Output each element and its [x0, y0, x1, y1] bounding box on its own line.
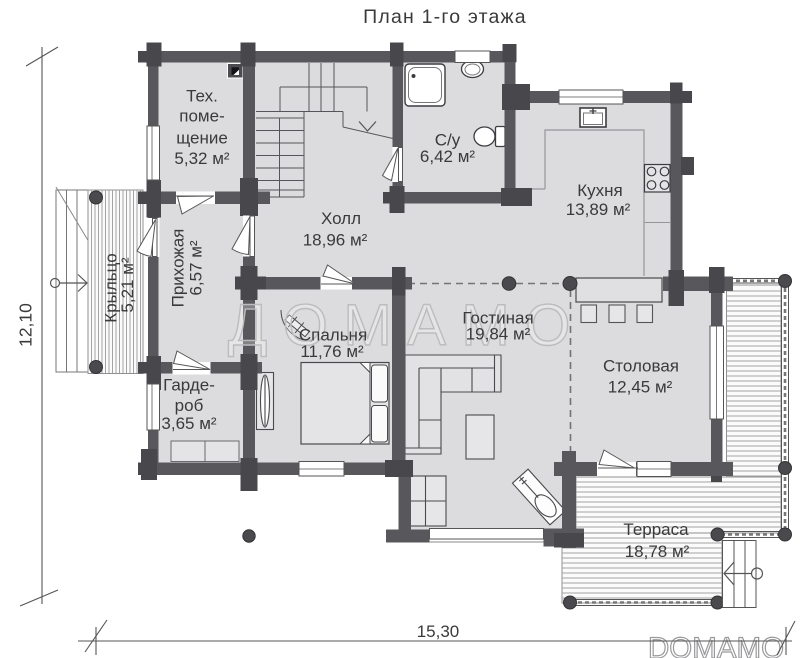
svg-text:6,57 м²: 6,57 м² — [187, 240, 206, 295]
svg-text:13,89 м²: 13,89 м² — [566, 200, 631, 219]
svg-text:18,78 м²: 18,78 м² — [625, 542, 690, 561]
svg-text:роб: роб — [175, 396, 204, 415]
svg-text:18,96 м²: 18,96 м² — [303, 231, 368, 250]
svg-text:5,32 м²: 5,32 м² — [174, 149, 229, 168]
svg-text:Столовая: Столовая — [603, 357, 679, 376]
svg-text:5,21 м²: 5,21 м² — [118, 257, 137, 312]
svg-text:План 1-го этажа: План 1-го этажа — [363, 6, 527, 28]
svg-text:Прихожая: Прихожая — [169, 229, 188, 308]
svg-text:3,65 м²: 3,65 м² — [161, 414, 216, 433]
svg-text:12,10: 12,10 — [16, 303, 36, 347]
svg-text:Холл: Холл — [321, 209, 361, 228]
svg-text:15,30: 15,30 — [417, 622, 460, 641]
svg-text:Тех.: Тех. — [186, 87, 218, 106]
svg-text:поме-: поме- — [179, 107, 224, 126]
svg-text:12,45 м²: 12,45 м² — [608, 378, 673, 397]
svg-text:DOMAMO: DOMAMO — [648, 632, 784, 658]
svg-text:11,76 м²: 11,76 м² — [300, 342, 364, 361]
svg-text:19,84 м²: 19,84 м² — [466, 325, 531, 344]
svg-text:Кухня: Кухня — [577, 181, 623, 200]
svg-text:6,42 м²: 6,42 м² — [420, 147, 475, 166]
svg-text:Гарде-: Гарде- — [163, 376, 215, 395]
svg-text:щение: щение — [176, 129, 228, 148]
svg-text:Терраса: Терраса — [623, 520, 689, 539]
